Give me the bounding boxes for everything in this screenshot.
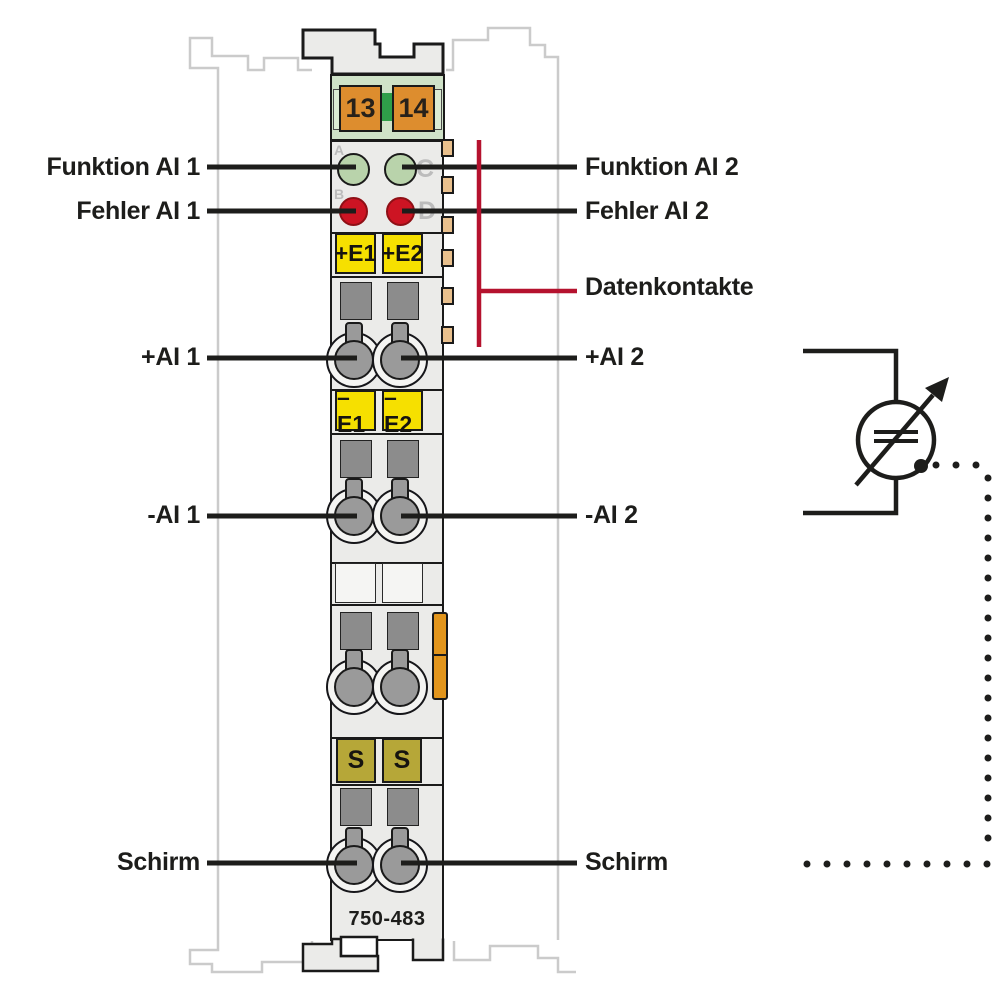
data-contact — [441, 287, 454, 305]
marker-minus-e2: –E2 — [382, 390, 423, 431]
ghost-module-left-bottom — [190, 940, 312, 972]
power-contact-14-label: 14 — [398, 93, 428, 124]
marker-blank-2 — [382, 563, 423, 603]
clamp-barrel — [334, 496, 374, 536]
power-contact-14: 14 — [392, 85, 435, 132]
label-minus-ai1: -AI 1 — [0, 502, 200, 529]
clamp-schirm-2 — [372, 837, 428, 893]
actuation-opening — [340, 612, 372, 650]
label-plus-ai2: +AI 2 — [585, 344, 644, 371]
module-body: A B C D +E1 +E2 –E1 –E2 S S — [330, 140, 444, 941]
marker-shield-2-text: S — [394, 746, 411, 775]
marker-shield-1-text: S — [348, 746, 365, 775]
clamp-plus-ai2 — [372, 332, 428, 388]
led-fehler-ai1 — [339, 197, 368, 226]
led-letter-c: C — [416, 155, 434, 184]
data-contact — [441, 216, 454, 234]
release-latch — [432, 612, 448, 700]
power-contact-13: 13 — [339, 85, 382, 132]
actuation-opening — [340, 788, 372, 826]
label-fehler-ai2: Fehler AI 2 — [585, 198, 709, 225]
clamp-barrel — [334, 667, 374, 707]
marker-plus-e1-text: +E1 — [335, 240, 377, 267]
marker-minus-e2-text: –E2 — [384, 384, 421, 438]
actuation-opening — [387, 612, 419, 650]
housing-seam — [331, 604, 443, 606]
label-datenkontakte: Datenkontakte — [585, 274, 753, 301]
led-funktion-ai2 — [384, 153, 417, 186]
part-number: 750-483 — [332, 908, 442, 931]
marker-plus-e1: +E1 — [335, 233, 376, 274]
marker-blank-1 — [335, 563, 376, 603]
led-letter-d: D — [418, 197, 436, 226]
housing-seam — [331, 276, 443, 278]
data-contact — [441, 176, 454, 194]
data-contact — [441, 249, 454, 267]
ghost-module-right-bottom — [454, 941, 576, 972]
housing-seam — [331, 784, 443, 786]
marker-shield-1: S — [336, 738, 376, 783]
label-schirm-left: Schirm — [0, 849, 200, 876]
clamp-barrel — [380, 340, 420, 380]
data-contact — [441, 326, 454, 344]
led-funktion-ai1 — [337, 153, 370, 186]
marker-plus-e2-text: +E2 — [382, 240, 424, 267]
module-header: 13 14 — [330, 74, 445, 141]
label-fehler-ai1: Fehler AI 1 — [0, 198, 200, 225]
clamp-barrel — [380, 845, 420, 885]
module-top-endcap — [303, 30, 443, 74]
wiring-diagram-canvas: 13 14 A B C D +E1 +E2 –E1 –E2 S S — [0, 0, 1006, 1007]
label-minus-ai2: -AI 2 — [585, 502, 638, 529]
actuation-opening — [340, 282, 372, 320]
marker-minus-e1: –E1 — [335, 390, 376, 431]
clamp-minus-ai2 — [372, 488, 428, 544]
led-letter-b: B — [334, 186, 344, 202]
data-contact — [441, 139, 454, 157]
actuation-opening — [387, 282, 419, 320]
clamp-barrel — [334, 845, 374, 885]
actuation-opening — [340, 440, 372, 478]
actuation-opening — [387, 440, 419, 478]
label-plus-ai1: +AI 1 — [0, 344, 200, 371]
label-funktion-ai1: Funktion AI 1 — [0, 154, 200, 181]
marker-plus-e2: +E2 — [382, 233, 423, 274]
ghost-module-left-top — [190, 38, 312, 940]
clamp-barrel — [334, 340, 374, 380]
clamp-barrel — [380, 667, 420, 707]
clamp-barrel — [380, 496, 420, 536]
marker-shield-2: S — [382, 738, 422, 783]
actuation-opening — [387, 788, 419, 826]
ghost-module-right-top — [446, 28, 558, 940]
label-funktion-ai2: Funktion AI 2 — [585, 154, 739, 181]
contact-backing-right — [434, 89, 442, 130]
led-fehler-ai2 — [386, 197, 415, 226]
latch-seam — [434, 654, 446, 656]
label-schirm-right: Schirm — [585, 849, 668, 876]
clamp-unused-2 — [372, 659, 428, 715]
power-contact-13-label: 13 — [345, 93, 375, 124]
marker-minus-e1-text: –E1 — [337, 384, 374, 438]
